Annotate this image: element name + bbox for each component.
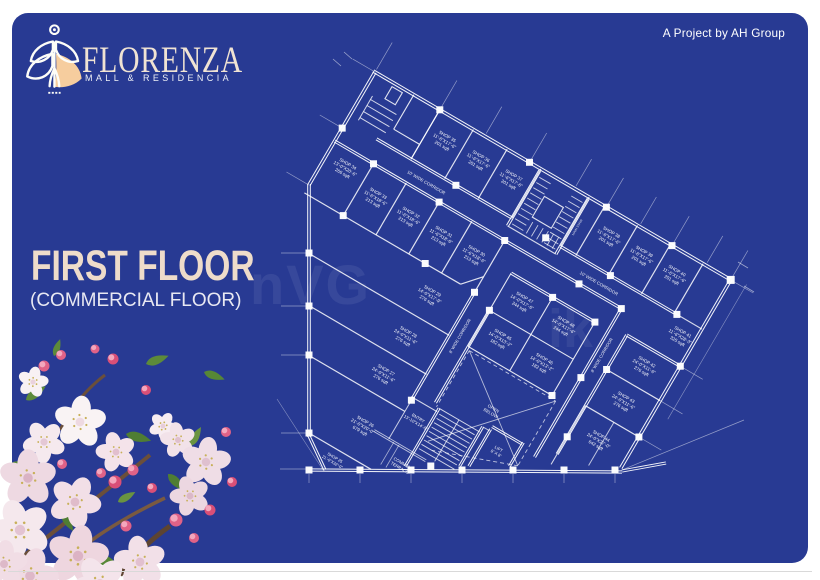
svg-text:10’ WIDE CORRIDOR: 10’ WIDE CORRIDOR [406, 169, 446, 195]
